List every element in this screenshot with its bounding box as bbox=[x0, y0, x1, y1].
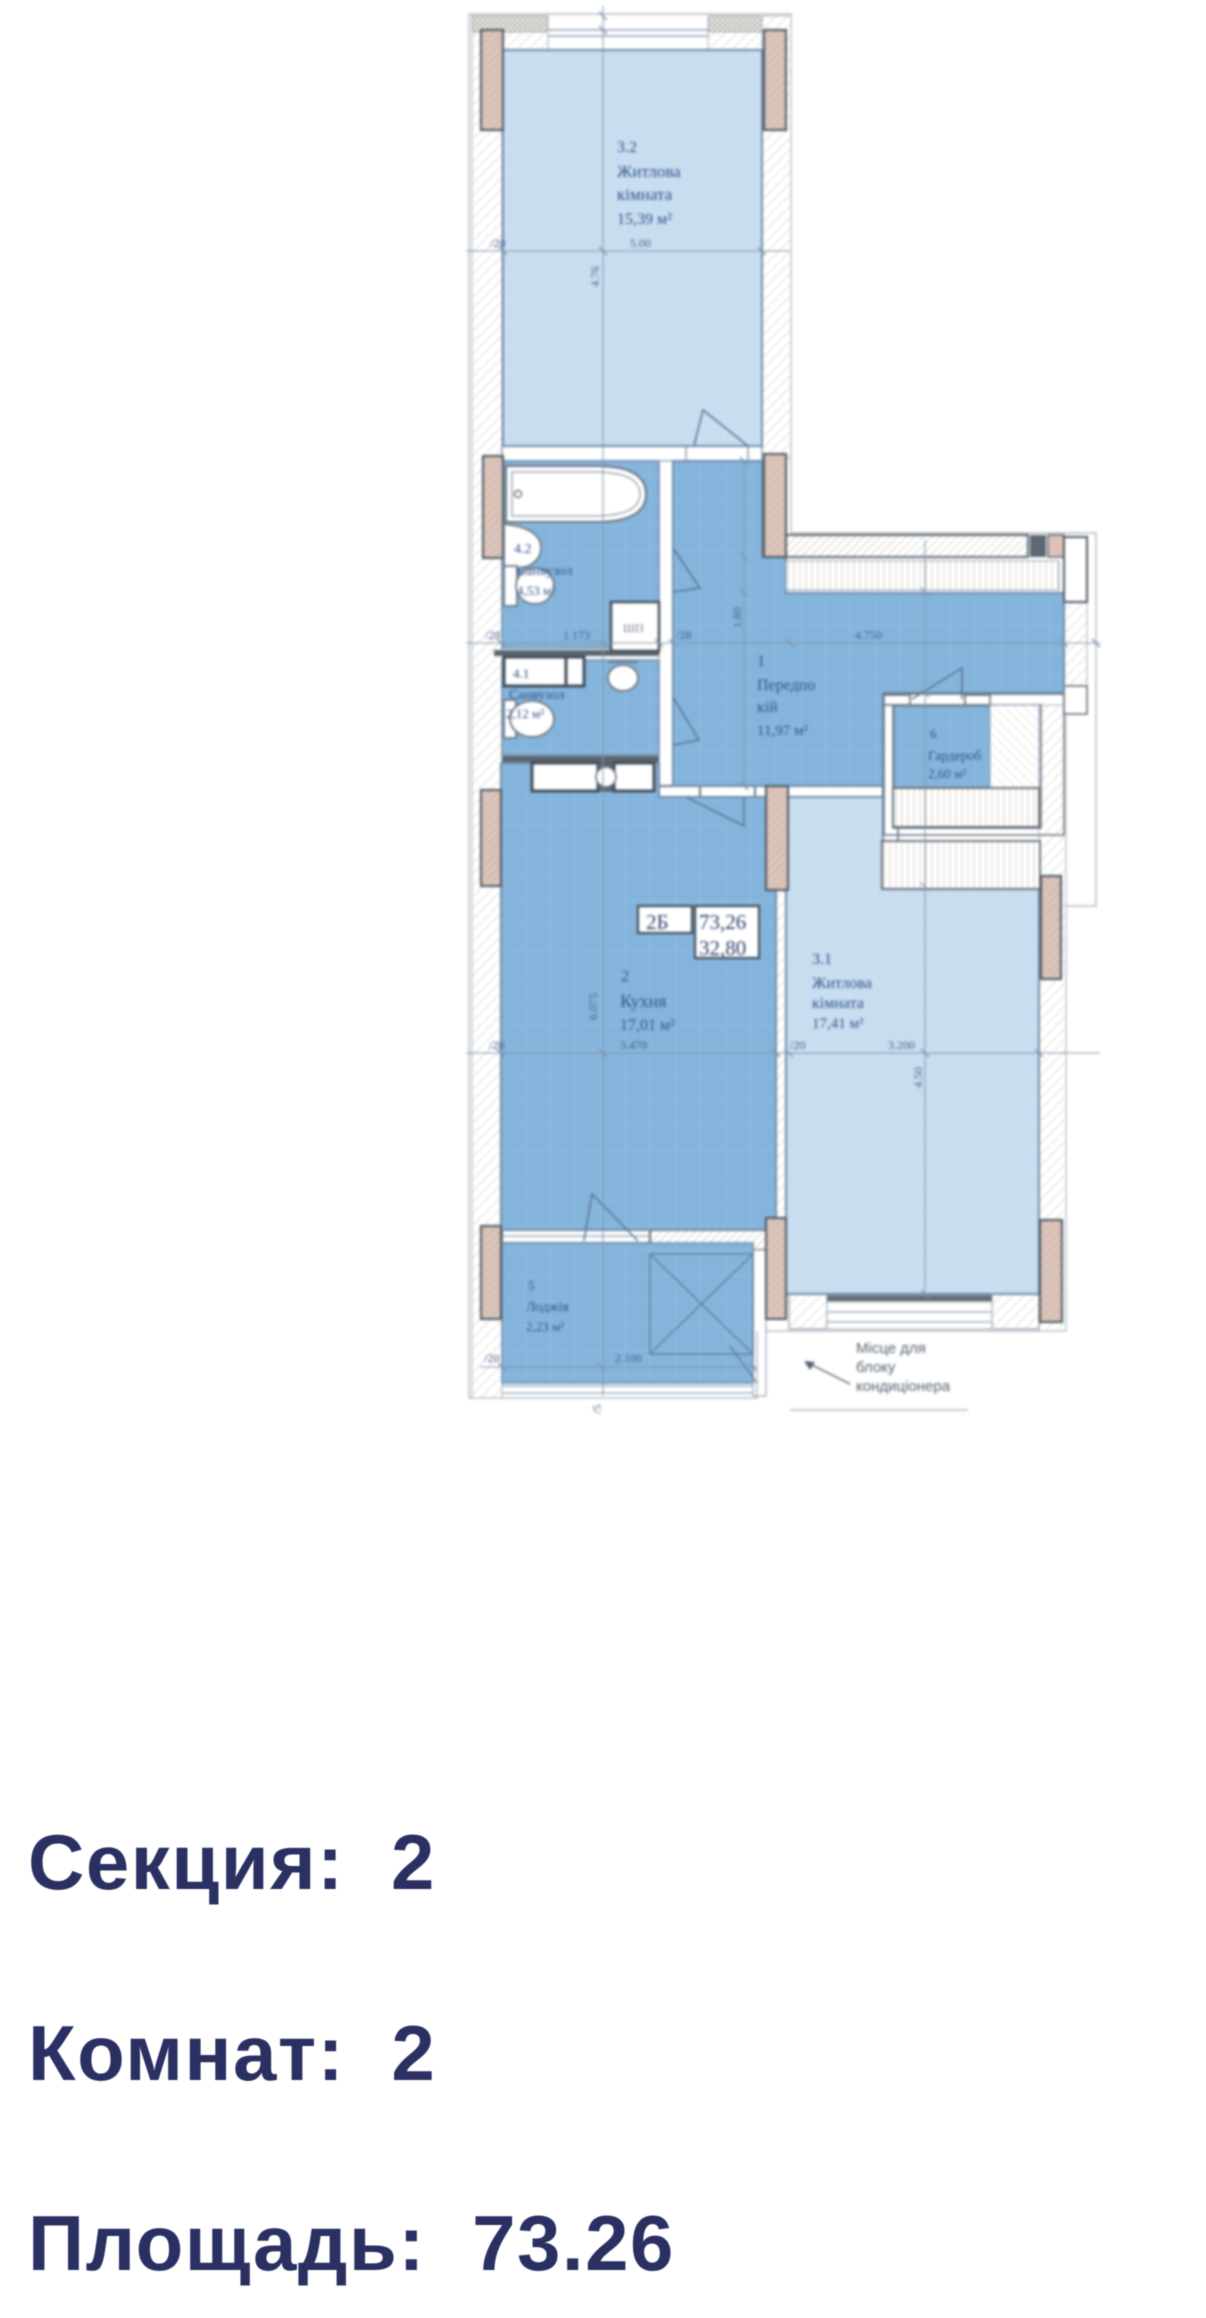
svg-text:17,01 м²: 17,01 м² bbox=[620, 1017, 675, 1034]
svg-text:/28: /28 bbox=[676, 628, 691, 642]
svg-text:/20: /20 bbox=[484, 1351, 499, 1365]
svg-text:Санвузол: Санвузол bbox=[517, 564, 572, 579]
svg-text:3.200: 3.200 bbox=[888, 1038, 915, 1052]
svg-text:2,23 м²: 2,23 м² bbox=[526, 1319, 564, 1334]
svg-text:кімната: кімната bbox=[617, 185, 673, 204]
svg-text:11,97 м²: 11,97 м² bbox=[757, 723, 808, 739]
svg-text:17,41 м²: 17,41 м² bbox=[812, 1016, 864, 1032]
svg-text:кій: кій bbox=[757, 699, 778, 716]
svg-text:3.470: 3.470 bbox=[620, 1038, 647, 1052]
svg-text:2,60 м²: 2,60 м² bbox=[928, 766, 966, 781]
svg-text:6: 6 bbox=[930, 726, 937, 741]
svg-text:15,39 м²: 15,39 м² bbox=[617, 211, 672, 228]
svg-text:2,12 м²: 2,12 м² bbox=[506, 706, 544, 721]
svg-text:4.1: 4.1 bbox=[513, 666, 529, 681]
svg-text:2.100: 2.100 bbox=[615, 1351, 642, 1365]
svg-text:Житлова: Житлова bbox=[812, 975, 872, 992]
svg-text:блоку: блоку bbox=[856, 1359, 896, 1376]
svg-text:кімната: кімната bbox=[812, 995, 864, 1012]
svg-text:2: 2 bbox=[621, 968, 629, 985]
svg-text:Місце для: Місце для bbox=[856, 1340, 926, 1357]
svg-text:кондиціонера: кондиціонера bbox=[856, 1378, 951, 1395]
svg-text:Кухня: Кухня bbox=[620, 991, 667, 1011]
svg-text:2Б: 2Б bbox=[646, 910, 669, 934]
svg-text:/20: /20 bbox=[790, 1038, 805, 1052]
svg-text:Санвузол: Санвузол bbox=[509, 688, 564, 703]
svg-text:4.76: 4.76 bbox=[588, 266, 602, 287]
svg-text:1.80: 1.80 bbox=[730, 607, 744, 628]
svg-text:/5: /5 bbox=[590, 1405, 604, 1414]
svg-text:3.1: 3.1 bbox=[812, 951, 832, 968]
svg-text:Передпо: Передпо bbox=[757, 677, 815, 694]
svg-text:/20: /20 bbox=[490, 236, 505, 250]
svg-text:Лоджія: Лоджія bbox=[526, 1300, 569, 1315]
svg-text:Житлова: Житлова bbox=[617, 162, 681, 181]
svg-text:Гардероб: Гардероб bbox=[928, 748, 981, 763]
svg-text:3.2: 3.2 bbox=[617, 139, 637, 156]
svg-text:1.173: 1.173 bbox=[563, 628, 590, 642]
svg-text:6.075: 6.075 bbox=[586, 993, 600, 1020]
svg-text:/20: /20 bbox=[489, 1038, 504, 1052]
svg-text:4.50: 4.50 bbox=[911, 1067, 925, 1088]
svg-text:4.750: 4.750 bbox=[855, 628, 882, 642]
svg-text:/28: /28 bbox=[485, 628, 500, 642]
svg-text:1: 1 bbox=[757, 653, 765, 670]
svg-text:73,26: 73,26 bbox=[699, 910, 746, 934]
svg-text:32,80: 32,80 bbox=[699, 936, 746, 960]
svg-text:5: 5 bbox=[528, 1278, 535, 1293]
svg-text:5.00: 5.00 bbox=[630, 236, 651, 250]
svg-text:ШП: ШП bbox=[623, 621, 644, 635]
svg-text:4.2: 4.2 bbox=[514, 542, 532, 557]
svg-text:4,53 м²: 4,53 м² bbox=[517, 583, 555, 598]
